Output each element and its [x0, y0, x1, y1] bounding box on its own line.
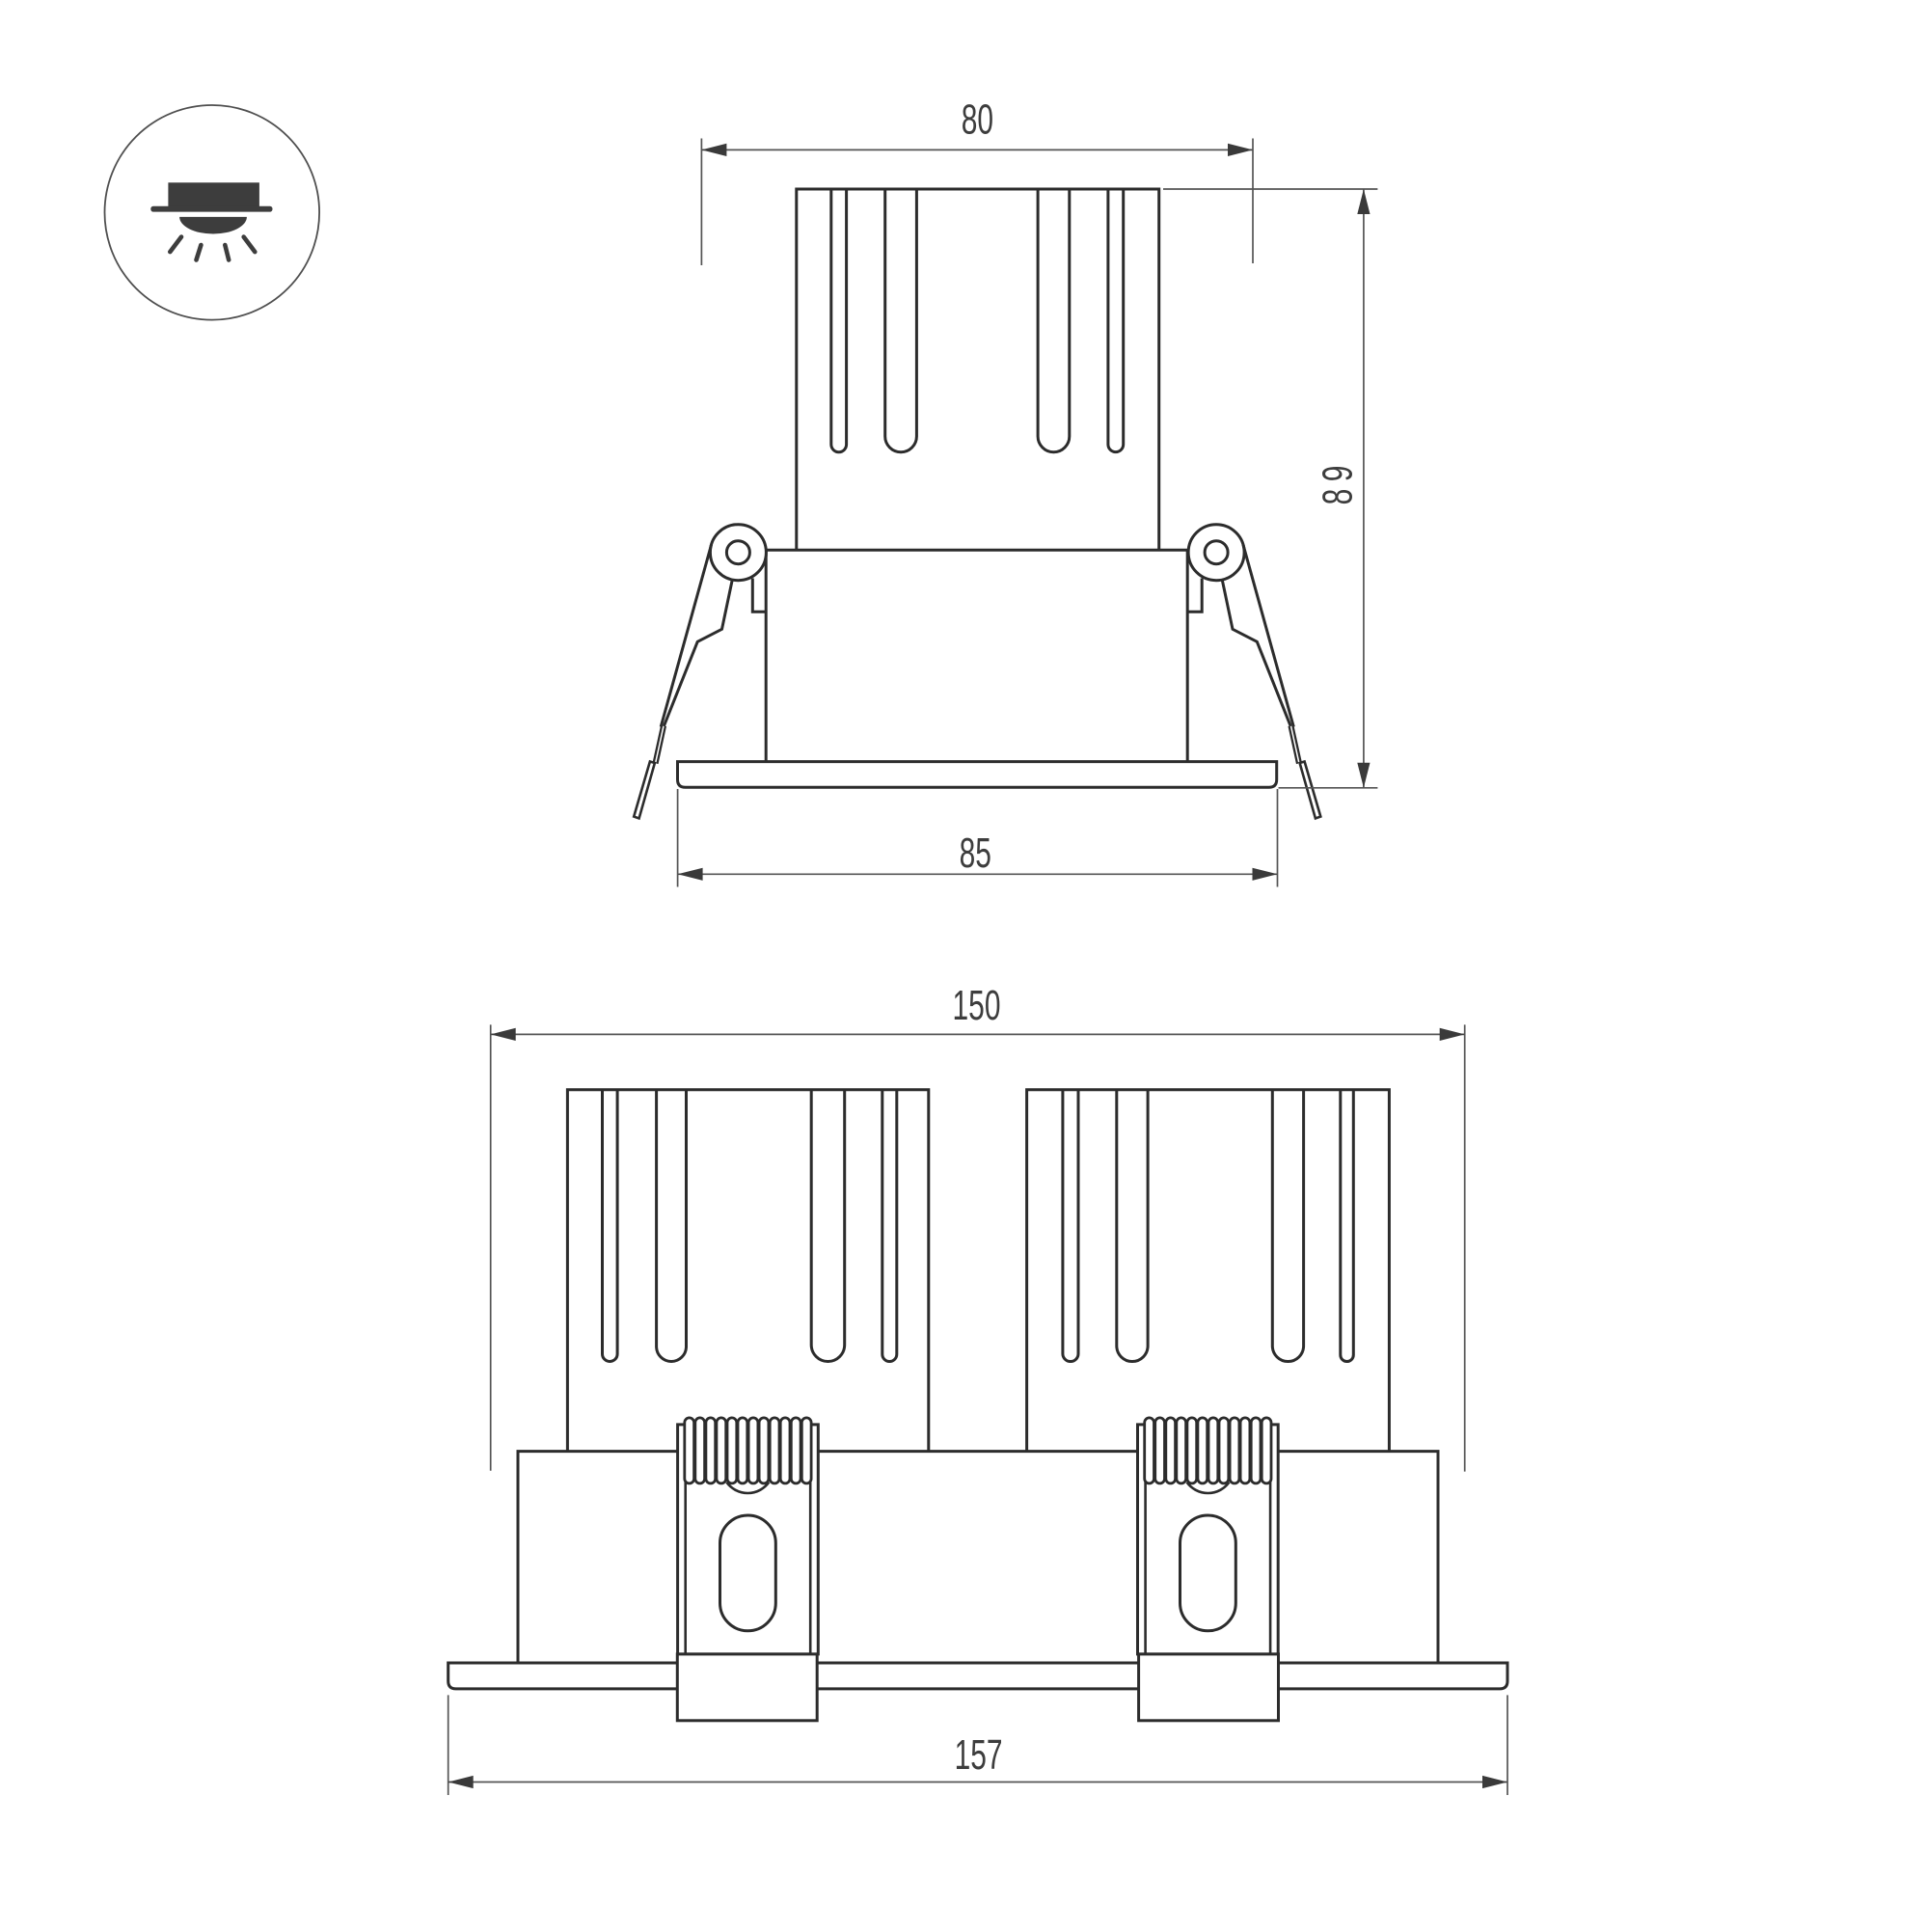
svg-text:89: 89 — [1314, 458, 1361, 504]
svg-text:150: 150 — [953, 981, 1001, 1028]
svg-text:80: 80 — [962, 95, 993, 143]
svg-text:157: 157 — [955, 1730, 1003, 1778]
svg-text:85: 85 — [960, 829, 991, 876]
